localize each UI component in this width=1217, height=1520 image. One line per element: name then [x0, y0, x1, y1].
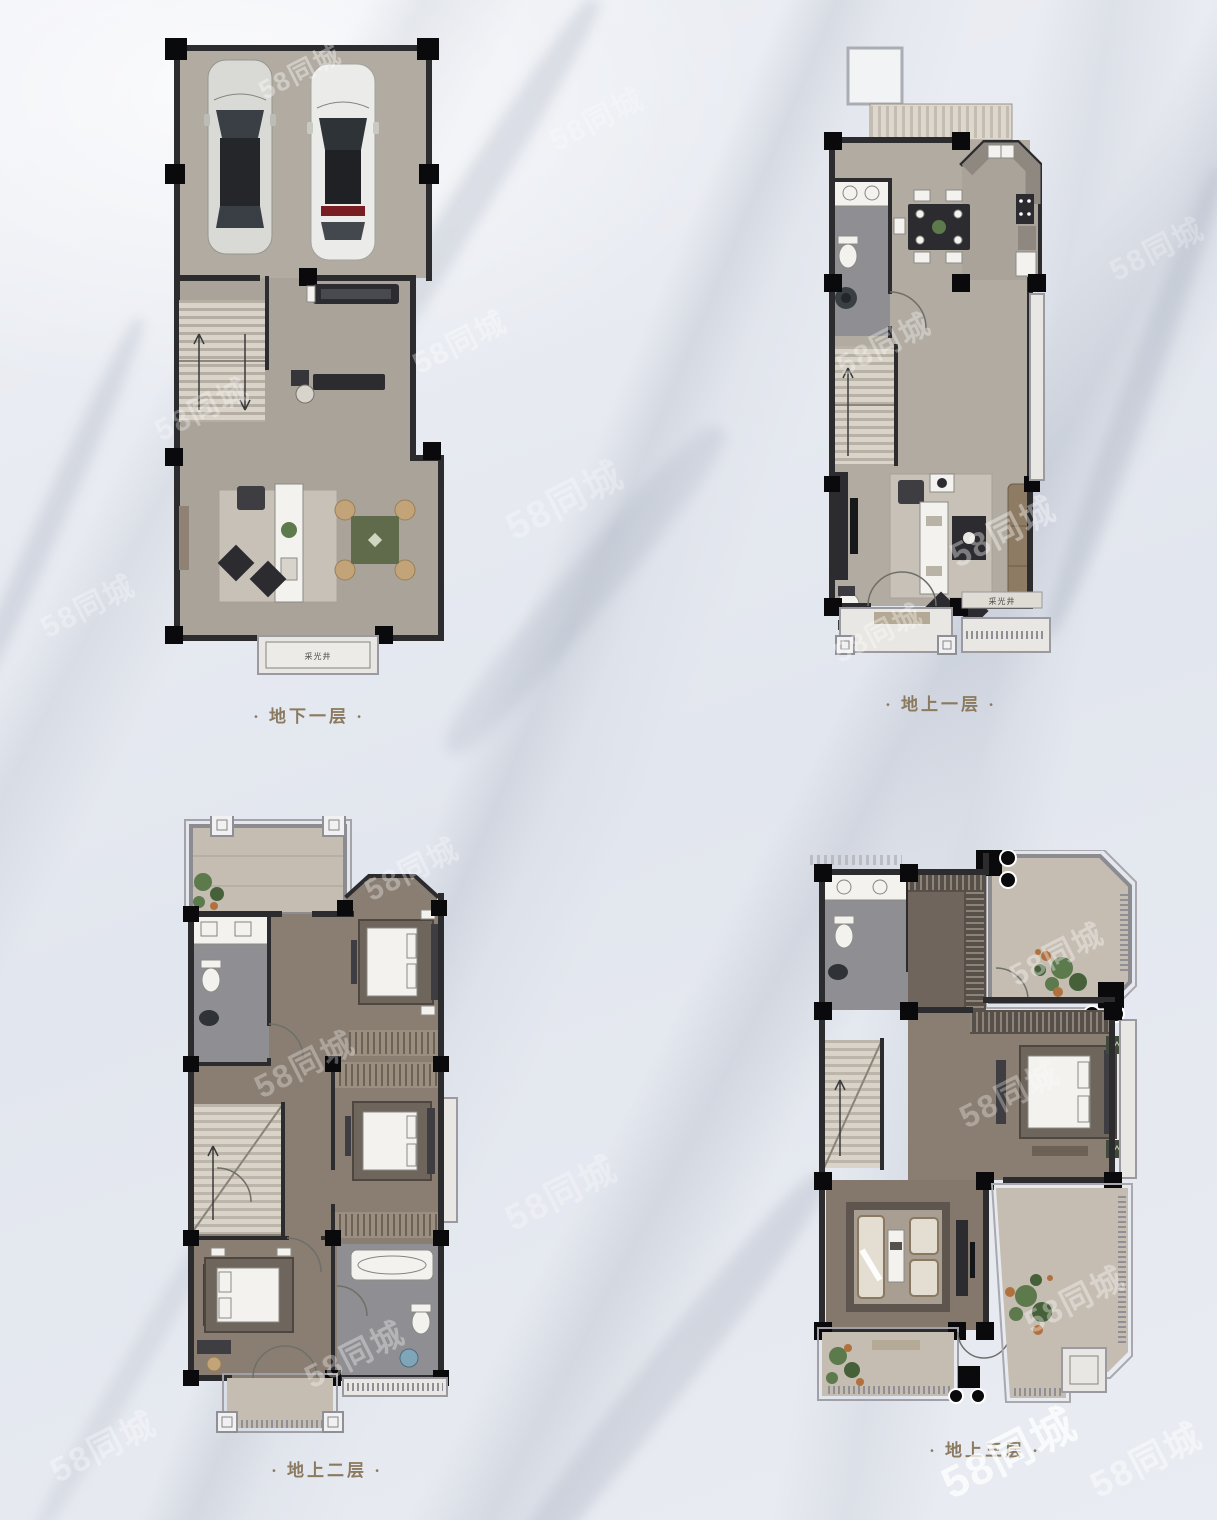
- terrace-lower: [992, 1184, 1132, 1402]
- caption-basement: · 地下一层 ·: [163, 702, 455, 727]
- ornament-post: [949, 1366, 985, 1403]
- car-right: [307, 64, 379, 260]
- bay-ledge: [1030, 294, 1044, 480]
- terrace-upper: [976, 850, 1136, 1022]
- watermark-58tongcheng: 58同城: [495, 1141, 626, 1242]
- stairs: [191, 1104, 283, 1234]
- bay-ledge: [1120, 1020, 1136, 1178]
- stairs: [824, 1040, 882, 1168]
- floor-plan-svg-basement: 采光井: [163, 38, 455, 686]
- side-steps: [962, 618, 1050, 652]
- family-room: 采光井: [165, 268, 441, 674]
- watermark-58tongcheng: 58同城: [32, 561, 142, 646]
- wall: [908, 856, 986, 872]
- balcony-lower: [818, 1328, 958, 1400]
- floor-plan-svg-floor2: [183, 816, 471, 1448]
- plan-basement: 采光井 · 地下一层 ·: [163, 38, 455, 727]
- car-left: [204, 60, 276, 254]
- sitting-room: [826, 1180, 986, 1330]
- caption-floor1: · 地上一层 ·: [812, 690, 1070, 715]
- marble-vein: [0, 313, 152, 716]
- light-well-label: 采光井: [989, 596, 1016, 606]
- wall-runner-rug: [179, 506, 189, 570]
- media-console: [307, 284, 399, 304]
- plan-floor2: · 地上二层 ·: [183, 816, 471, 1481]
- plan-floor3: · 地上三层 ·: [810, 850, 1160, 1461]
- floor-plan-svg-floor3: [810, 850, 1160, 1410]
- master-bedroom: [908, 1010, 1128, 1180]
- plan-floor1: 采光井 · 地上一层 ·: [812, 46, 1070, 715]
- light-well-label: 采光井: [305, 651, 332, 661]
- stairs: [832, 346, 896, 464]
- marble-vein: [431, 413, 739, 767]
- walk-in-closet: [908, 872, 986, 1010]
- light-well: 采光井: [962, 592, 1042, 608]
- light-well: 采光井: [258, 636, 378, 674]
- roof-terrace: [185, 816, 351, 920]
- kitchen: [962, 142, 1040, 280]
- caption-floor2: · 地上二层 ·: [183, 1456, 471, 1481]
- rear-ledge: [343, 1378, 447, 1396]
- lounge-area: [218, 484, 337, 602]
- garage: [165, 38, 439, 278]
- floor-plan-svg-floor1: 采光井: [812, 46, 1070, 668]
- floorplan-sheet: 采光井 · 地下一层 ·: [0, 0, 1217, 1520]
- bathroom-2: [337, 1244, 441, 1378]
- chimney: [848, 48, 902, 104]
- entry-steps-top: [870, 104, 1012, 140]
- marble-vein: [485, 1161, 841, 1520]
- caption-floor3: · 地上三层 ·: [810, 1436, 1160, 1461]
